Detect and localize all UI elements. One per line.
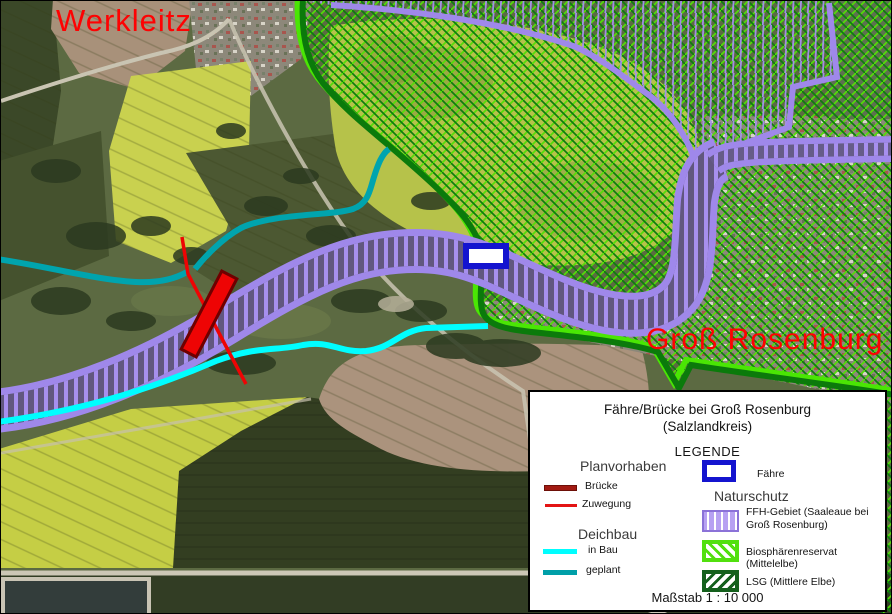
legend-section-deichbau: Deichbau (578, 526, 637, 542)
legend-item-ffh: FFH-Gebiet (Saaleaue bei Groß Rosenburg) (746, 506, 886, 532)
legend-item-lsg: LSG (Mittlere Elbe) (746, 576, 835, 588)
legend-title-line2: (Salzlandkreis) (530, 419, 885, 434)
legend-item-geplant: geplant (586, 564, 620, 576)
map-canvas: Werkleitz Groß Rosenburg Fähre/Brücke be… (0, 0, 892, 614)
legend-item-bruecke: Brücke (585, 480, 618, 492)
ffh-swatch (702, 510, 739, 532)
legend-scale-text: Maßstab 1 : 10 000 (530, 590, 885, 605)
biosphaerenreservat-swatch (702, 540, 739, 562)
faehre-swatch (702, 460, 736, 482)
lsg-swatch (702, 570, 739, 592)
ferry-marker (466, 246, 506, 266)
legend-item-in-bau: in Bau (588, 544, 618, 556)
legend-title-line1: Fähre/Brücke bei Groß Rosenburg (530, 402, 885, 417)
legend-heading: LEGENDE (530, 444, 885, 459)
legend-item-biosphaerenreservat: Biosphärenreservat (Mittelelbe) (746, 546, 885, 570)
legend-item-faehre: Fähre (757, 468, 784, 480)
geplant-swatch (543, 570, 577, 575)
in-bau-swatch (543, 549, 577, 554)
legend-item-zuwegung: Zuwegung (582, 498, 631, 510)
legend-section-naturschutz: Naturschutz (714, 488, 789, 504)
legend-section-planvorhaben: Planvorhaben (580, 458, 666, 474)
place-label-werkleitz: Werkleitz (56, 5, 192, 36)
place-label-gross-rosenburg: Groß Rosenburg (646, 325, 883, 355)
legend-box: Fähre/Brücke bei Groß Rosenburg (Salzlan… (528, 390, 887, 612)
zuwegung-swatch (545, 504, 577, 507)
bruecke-swatch (544, 485, 577, 491)
